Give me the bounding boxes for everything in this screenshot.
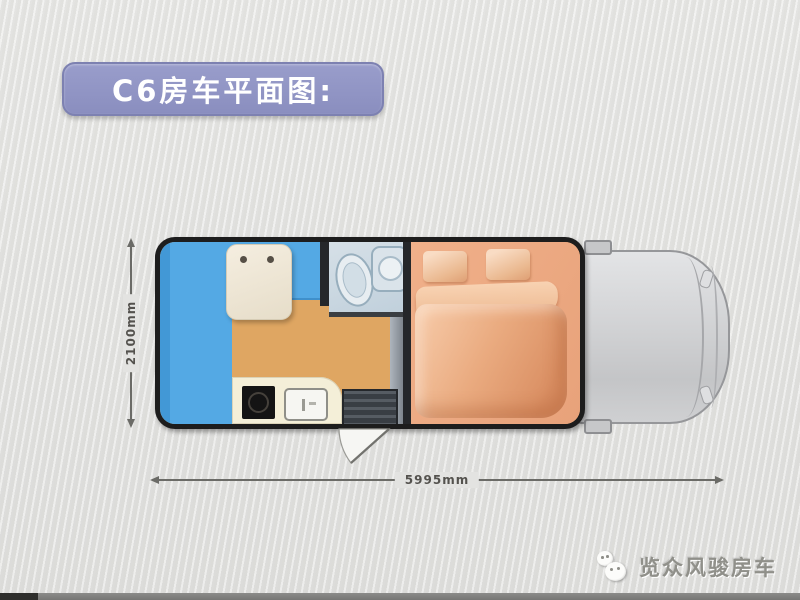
entry-door-swing-icon: [335, 428, 399, 470]
watermark-text: 览众风骏房车: [639, 552, 777, 582]
entry-steps: [342, 389, 398, 424]
pillow-right-icon: [486, 249, 530, 280]
side-sofa: [160, 242, 232, 424]
page-title: C6房车平面图:: [62, 62, 384, 116]
page: C6房车平面图:: [0, 0, 800, 600]
arrow-right-icon: [715, 476, 724, 484]
arrow-down-icon: [127, 419, 135, 428]
truck-cab: [568, 250, 730, 424]
watermark: 览众风骏房车: [596, 550, 777, 584]
kitchen-sink-icon: [284, 388, 328, 421]
bedroom: [411, 242, 580, 424]
side-mirror-bottom-icon: [584, 419, 612, 434]
side-mirror-top-icon: [584, 240, 612, 255]
bed-duvet: [415, 304, 567, 418]
page-title-text: C6房车平面图:: [112, 68, 334, 110]
width-dimension-label: 5995mm: [395, 472, 479, 488]
bathroom-wall-left: [320, 242, 329, 306]
kitchen-counter: [232, 377, 342, 424]
wechat-icon: [596, 550, 630, 584]
dinette-table: [226, 244, 292, 320]
stove-icon: [242, 386, 275, 419]
height-dimension-label: 2100mm: [123, 294, 139, 372]
pillow-left-icon: [423, 251, 467, 282]
width-dimension: 5995mm: [150, 471, 724, 489]
rv-body-outline: [155, 237, 585, 429]
rv-interior-floor: [160, 242, 580, 424]
height-dimension: 2100mm: [122, 238, 140, 428]
bottom-bar: [0, 593, 800, 600]
bedroom-wall: [403, 242, 411, 424]
